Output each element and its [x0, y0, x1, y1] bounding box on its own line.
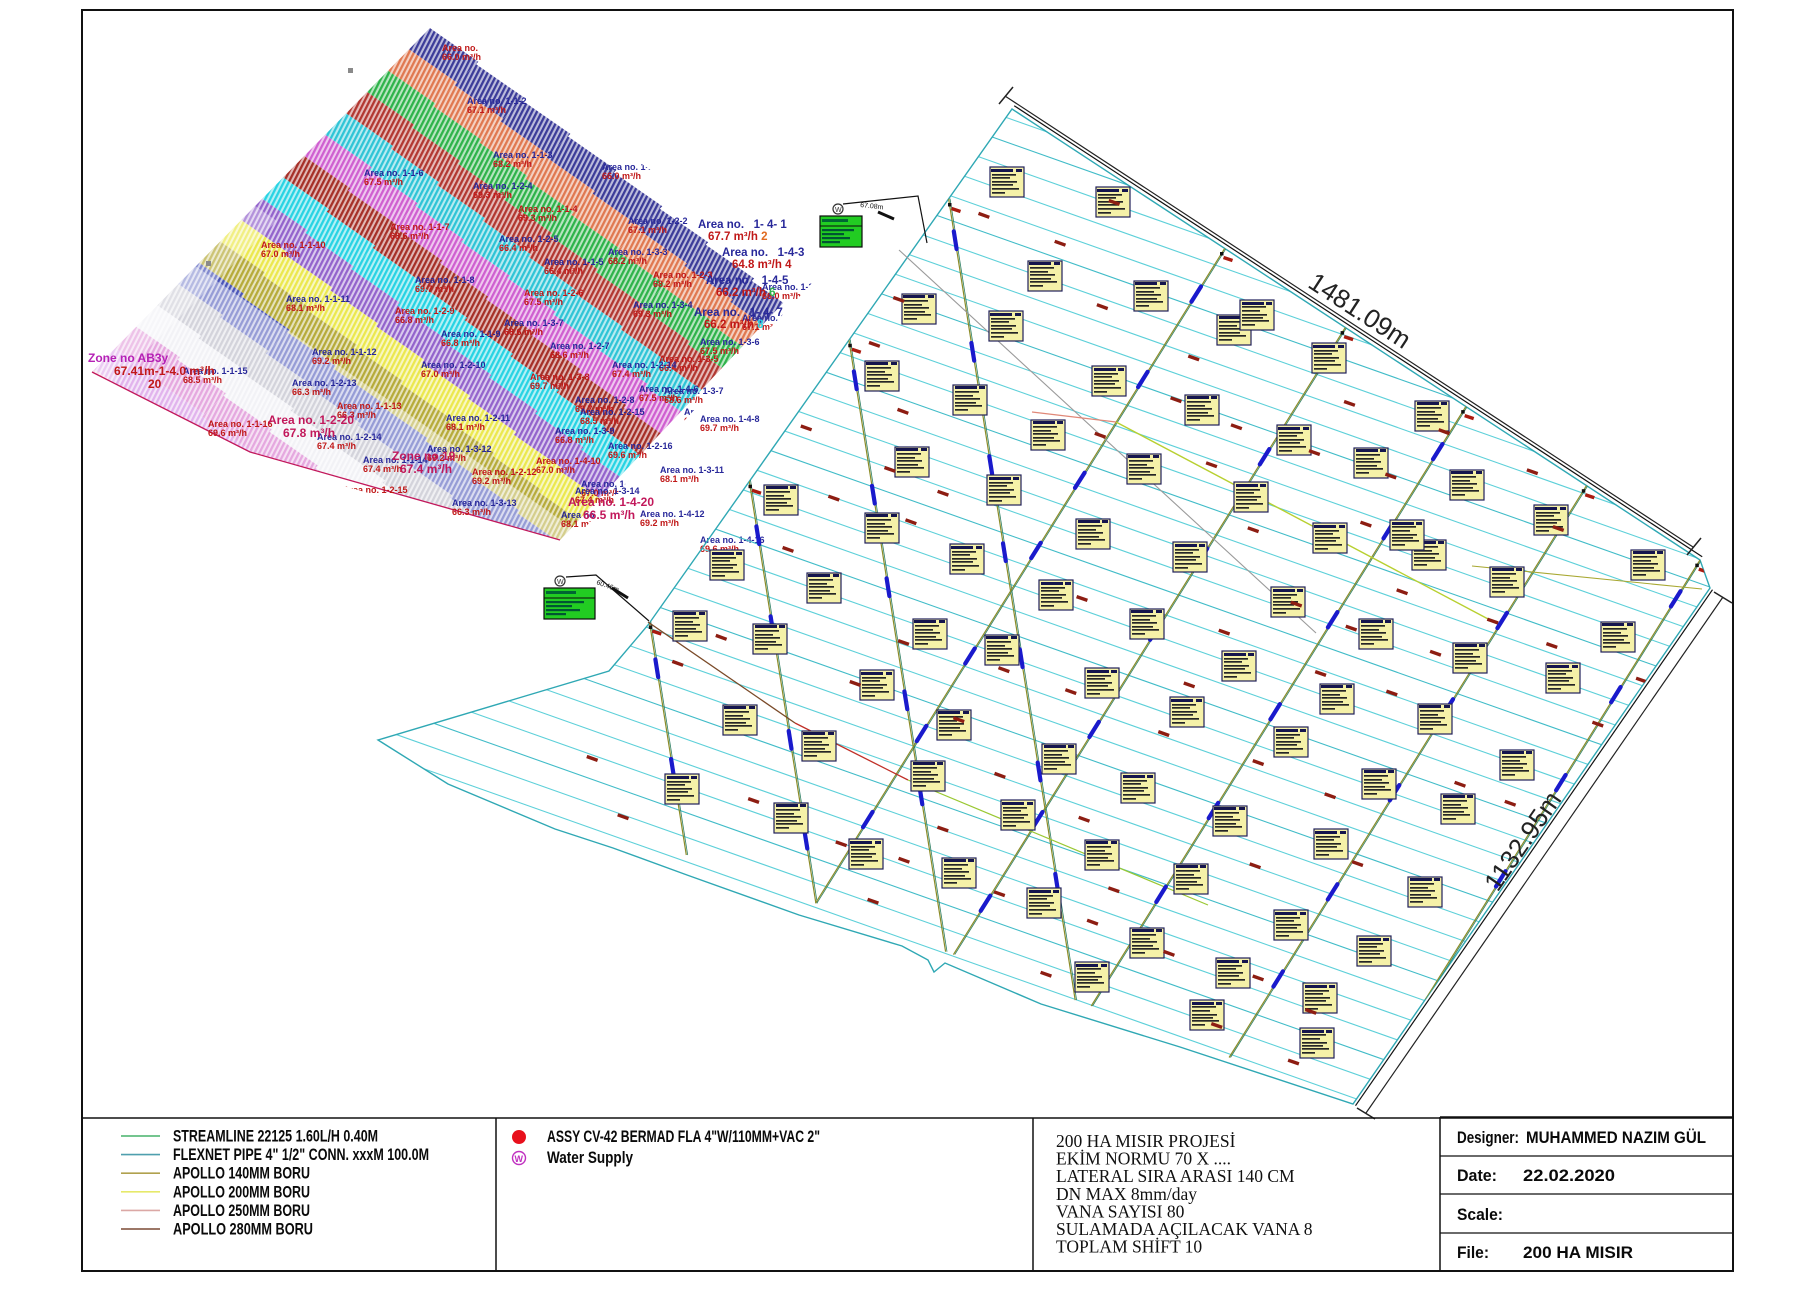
svg-text:22.02.2020: 22.02.2020: [1523, 1167, 1615, 1185]
svg-text:Zone no AB3y: Zone no AB3y: [88, 351, 169, 365]
svg-text:67.0 m³/h: 67.0 m³/h: [536, 465, 575, 475]
svg-text:67.4 m³/h: 67.4 m³/h: [612, 369, 651, 379]
svg-text:APOLLO 200MM BORU: APOLLO 200MM BORU: [173, 1183, 310, 1201]
svg-text:67.1 m³/h: 67.1 m³/h: [628, 225, 667, 235]
svg-text:67.4 m³/h: 67.4 m³/h: [317, 441, 356, 451]
svg-text:66.2 m³/h 6: 66.2 m³/h 6: [716, 287, 775, 299]
svg-text:69.2 m³/h: 69.2 m³/h: [312, 356, 351, 366]
svg-text:STREAMLINE 22125 1.60L/H 0.40M: STREAMLINE 22125 1.60L/H 0.40M: [173, 1128, 378, 1146]
svg-text:69.3 m³/h: 69.3 m³/h: [633, 309, 672, 319]
svg-text:67.5 m³/h: 67.5 m³/h: [524, 297, 563, 307]
svg-text:68.6 m³/h: 68.6 m³/h: [390, 231, 429, 241]
svg-text:MUHAMMED NAZIM GÜL: MUHAMMED NAZIM GÜL: [1526, 1128, 1706, 1147]
svg-text:67.5 m³/h: 67.5 m³/h: [700, 346, 739, 356]
svg-text:67.0 m³/h: 67.0 m³/h: [421, 369, 460, 379]
svg-text:Area no. 1- 4- 1: Area no. 1- 4- 1: [698, 219, 787, 231]
svg-text:69.7 m³/h: 69.7 m³/h: [415, 284, 454, 294]
svg-text:68.2 m³/h: 68.2 m³/h: [608, 256, 647, 266]
svg-text:66.4 m³/h: 66.4 m³/h: [544, 266, 583, 276]
svg-text:ASSY CV-42 BERMAD FLA 4"W/110M: ASSY CV-42 BERMAD FLA 4"W/110MM+VAC 2": [547, 1128, 820, 1146]
svg-text:FLEXNET PIPE 4" 1/2" CONN. xxx: FLEXNET PIPE 4" 1/2" CONN. xxxM 100.0M: [173, 1146, 429, 1164]
svg-text:200 HA MISIR: 200 HA MISIR: [1523, 1244, 1633, 1262]
svg-text:66.2 m³/h 8: 66.2 m³/h 8: [704, 319, 764, 331]
svg-text:69.3 m³/h: 69.3 m³/h: [473, 190, 512, 200]
svg-text:67.0 m³/h: 67.0 m³/h: [261, 249, 300, 259]
svg-text:Designer:: Designer:: [1457, 1129, 1519, 1147]
svg-text:68.6 m³/h: 68.6 m³/h: [664, 395, 703, 405]
svg-text:67.4 m³/h: 67.4 m³/h: [363, 464, 402, 474]
svg-text:TOPLAM SHİFT 10: TOPLAM SHİFT 10: [1056, 1237, 1202, 1257]
svg-text:66.0 m³/h: 66.0 m³/h: [602, 171, 641, 181]
svg-text:66.8 m³/h: 66.8 m³/h: [555, 435, 594, 445]
svg-text:69.2 m³/h: 69.2 m³/h: [472, 476, 511, 486]
svg-text:66.8 m³/h: 66.8 m³/h: [441, 338, 480, 348]
svg-text:66.3 m³/h: 66.3 m³/h: [452, 507, 491, 517]
svg-text:File:: File:: [1457, 1244, 1489, 1262]
svg-text:Area no. 1- 4- 7: Area no. 1- 4- 7: [694, 307, 783, 319]
svg-text:64.8 m³/h 4: 64.8 m³/h 4: [732, 259, 792, 271]
svg-text:Area no. 1-4-3: Area no. 1-4-3: [722, 247, 804, 259]
svg-text:66.8 m³/h: 66.8 m³/h: [395, 315, 434, 325]
svg-text:69.6 m³/h: 69.6 m³/h: [608, 450, 647, 460]
svg-text:W: W: [515, 1154, 524, 1164]
svg-text:66.5 m³/h: 66.5 m³/h: [583, 508, 635, 522]
svg-text:Scale:: Scale:: [1457, 1206, 1503, 1224]
svg-text:Date:: Date:: [1457, 1167, 1497, 1185]
svg-text:68.1 m³/h: 68.1 m³/h: [660, 474, 699, 484]
svg-text:66.4 m³/h: 66.4 m³/h: [499, 243, 538, 253]
svg-text:W: W: [557, 579, 564, 586]
svg-text:69.6 m³/h: 69.6 m³/h: [208, 428, 247, 438]
svg-text:20: 20: [148, 377, 162, 391]
svg-text:68.1 m³/h: 68.1 m³/h: [286, 303, 325, 313]
svg-text:69.2 m³/h: 69.2 m³/h: [640, 518, 679, 528]
svg-text:67.4 m³/h: 67.4 m³/h: [400, 462, 452, 476]
svg-text:69.7 m³/h: 69.7 m³/h: [530, 381, 569, 391]
svg-text:Area no. 1-4-5: Area no. 1-4-5: [706, 275, 789, 287]
svg-text:APOLLO 140MM BORU: APOLLO 140MM BORU: [173, 1165, 310, 1183]
svg-text:Area no. 1-2-20: Area no. 1-2-20: [268, 413, 354, 427]
svg-text:68.6 m³/h: 68.6 m³/h: [550, 350, 589, 360]
svg-text:66.3 m³/h: 66.3 m³/h: [292, 387, 331, 397]
svg-text:68.2 m³/h: 68.2 m³/h: [653, 279, 692, 289]
svg-text:68.1 m³/h: 68.1 m³/h: [446, 422, 485, 432]
svg-text:67.41m-1-4.0 m³/h: 67.41m-1-4.0 m³/h: [114, 364, 215, 378]
svg-text:Area no. 1-4-20: Area no. 1-4-20: [568, 495, 654, 509]
svg-text:APOLLO 280MM BORU: APOLLO 280MM BORU: [173, 1221, 313, 1239]
svg-text:W: W: [835, 207, 842, 214]
svg-text:67.8 m³/h: 67.8 m³/h: [283, 426, 335, 440]
svg-text:Zone no 19: Zone no 19: [392, 449, 456, 463]
svg-text:69.7 m³/h: 69.7 m³/h: [700, 423, 739, 433]
svg-text:67.7 m³/h 2: 67.7 m³/h 2: [708, 231, 767, 243]
svg-text:APOLLO 250MM BORU: APOLLO 250MM BORU: [173, 1202, 310, 1220]
svg-text:Water Supply: Water Supply: [547, 1149, 634, 1167]
svg-text:67.1 m³/h: 67.1 m³/h: [467, 105, 506, 115]
svg-text:68.2 m³/h: 68.2 m³/h: [493, 159, 532, 169]
svg-text:69.3 m³/h: 69.3 m³/h: [518, 213, 557, 223]
svg-text:67.5 m³/h: 67.5 m³/h: [364, 177, 403, 187]
svg-text:66.0 m³/h: 66.0 m³/h: [442, 52, 481, 62]
svg-text:68.6 m³/h: 68.6 m³/h: [504, 327, 543, 337]
svg-text:68.5 m³/h: 68.5 m³/h: [580, 416, 619, 426]
